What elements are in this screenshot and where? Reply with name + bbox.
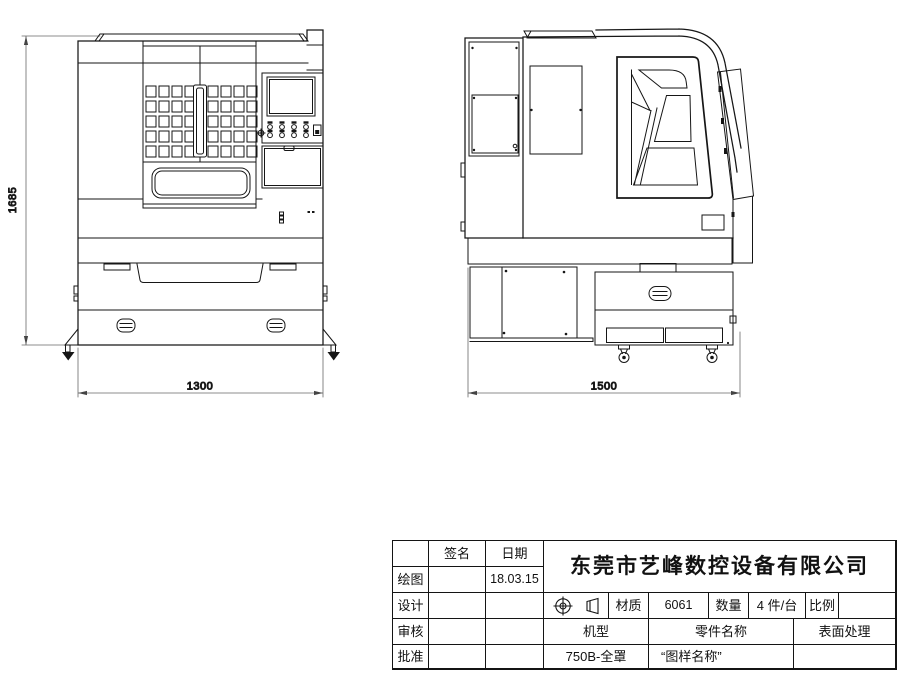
drawing-sheet: 1685 xyxy=(0,0,908,676)
first-angle-projection-icon xyxy=(550,596,602,616)
front-doors xyxy=(78,41,262,208)
drawer-handle-left xyxy=(117,319,135,332)
front-height-dimension: 1685 xyxy=(7,36,100,345)
approval-date-design xyxy=(486,593,544,619)
rear-cabinet xyxy=(461,38,523,238)
drawer-handle-right xyxy=(267,319,285,332)
part-name-label: 零件名称 xyxy=(649,619,794,645)
side-width-dimension: 1500 xyxy=(468,268,740,397)
chip-cart xyxy=(595,264,736,363)
side-window xyxy=(617,57,712,198)
door-handle xyxy=(194,85,207,157)
approval-date-draw: 18.03.15 xyxy=(486,567,544,593)
model-value: 750B-全罩 xyxy=(544,645,649,669)
date-header: 日期 xyxy=(486,541,544,567)
projection-symbol-cell xyxy=(544,593,609,619)
material-label: 材质 xyxy=(609,593,649,619)
control-panel xyxy=(257,73,323,143)
scale-label: 比例 xyxy=(806,593,839,619)
side-access-door xyxy=(530,66,582,154)
signature-header: 签名 xyxy=(429,541,486,567)
side-small-panel xyxy=(702,212,735,230)
power-switch xyxy=(314,125,322,136)
side-view: 1500 xyxy=(461,29,754,397)
front-width-label: 1300 xyxy=(187,381,213,393)
front-height-label: 1685 xyxy=(7,187,19,213)
title-block: 签名 日期 东莞市艺峰数控设备有限公司 绘图 18.03.15 设计 材质 60… xyxy=(392,540,897,670)
approval-date-approve xyxy=(486,645,544,669)
lower-viewing-window xyxy=(152,168,250,198)
control-buttons xyxy=(268,121,309,137)
base-service-panel xyxy=(470,267,593,342)
caster-wheel-left xyxy=(619,345,630,363)
approval-label-review: 审核 xyxy=(393,619,429,645)
approval-label-draw: 绘图 xyxy=(393,567,429,593)
approval-signature-design xyxy=(429,593,486,619)
front-hinge-details xyxy=(280,211,315,223)
model-label: 机型 xyxy=(544,619,649,645)
front-base xyxy=(62,238,340,361)
part-name-value: “图样名称” xyxy=(649,645,794,669)
material-value: 6061 xyxy=(649,593,709,619)
corner-cell xyxy=(393,541,429,567)
surface-treatment-value xyxy=(794,645,896,669)
quantity-label: 数量 xyxy=(709,593,749,619)
approval-signature-approve xyxy=(429,645,486,669)
approval-signature-draw xyxy=(429,567,486,593)
emergency-knob xyxy=(257,129,265,137)
approval-label-approve: 批准 xyxy=(393,645,429,669)
approval-date-review xyxy=(486,619,544,645)
quantity-value: 4 件/台 xyxy=(749,593,806,619)
side-pendant-panel xyxy=(718,69,754,263)
electrical-door xyxy=(262,146,323,188)
scale-value xyxy=(839,593,896,619)
side-width-label: 1500 xyxy=(591,381,617,393)
surface-treatment-label: 表面处理 xyxy=(794,619,896,645)
side-base xyxy=(468,238,736,363)
front-top-rail xyxy=(95,34,308,41)
leveling-feet xyxy=(62,345,340,361)
approval-label-design: 设计 xyxy=(393,593,429,619)
control-screen xyxy=(267,77,315,116)
caster-wheel-right xyxy=(707,345,718,363)
front-width-dimension: 1300 xyxy=(78,348,323,397)
machine-views-canvas: 1685 xyxy=(0,0,908,530)
company-name: 东莞市艺峰数控设备有限公司 xyxy=(544,541,896,593)
front-view: 1685 xyxy=(7,30,340,397)
approval-signature-review xyxy=(429,619,486,645)
